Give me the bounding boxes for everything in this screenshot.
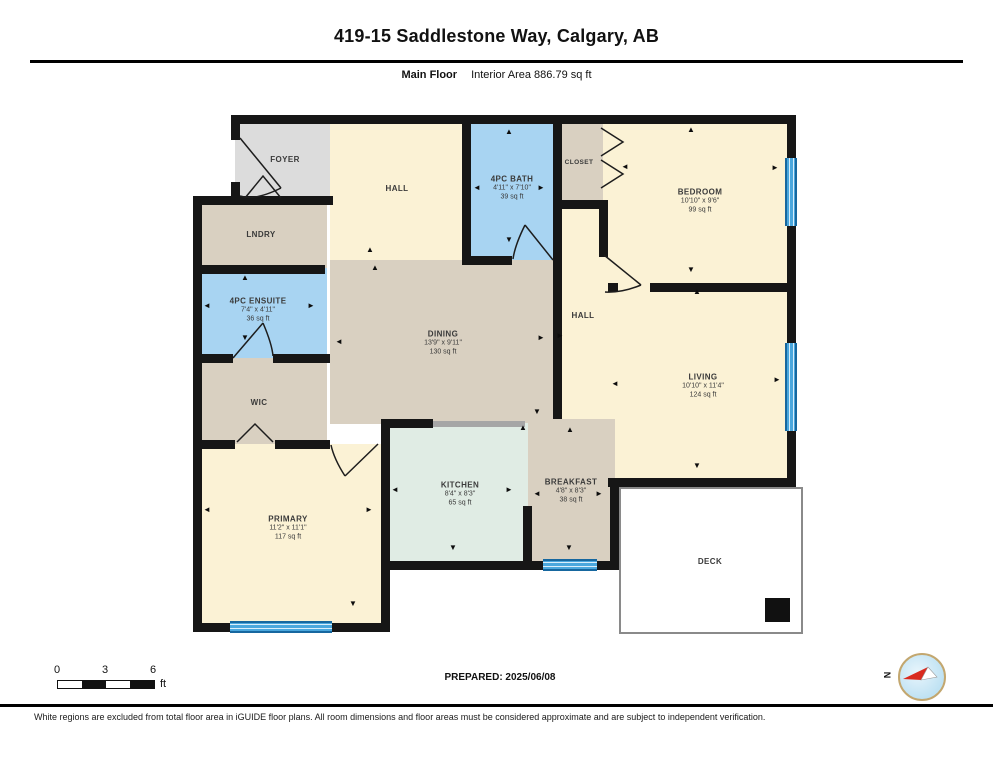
breakfast-window [543, 559, 597, 571]
wall [553, 209, 562, 419]
floor-subtitle: Main FloorInterior Area 886.79 sq ft [0, 69, 993, 81]
camera-arrow-icon [371, 264, 379, 272]
compass-north-label: N [882, 672, 892, 679]
scale-number-6: 6 [147, 664, 159, 676]
camera-arrow-icon [505, 236, 513, 244]
camera-arrow-icon [519, 424, 527, 432]
wall [608, 283, 618, 292]
wall [650, 283, 796, 292]
camera-arrow-icon [693, 288, 701, 296]
kitchen-counter [430, 421, 525, 427]
label-lndry: LNDRY [246, 230, 275, 240]
label-primary: PRIMARY 11'2" x 11'1" 117 sq ft [268, 514, 307, 542]
camera-arrow-icon [349, 600, 357, 608]
wall [231, 115, 240, 140]
prepared-date: PREPARED: 2025/06/08 [380, 672, 620, 683]
page-title: 419-15 Saddlestone Way, Calgary, AB [0, 26, 993, 47]
label-bath: 4PC BATH 4'11" x 7'10" 39 sq ft [491, 174, 534, 202]
camera-arrow-icon [537, 334, 545, 342]
camera-arrow-icon [693, 462, 701, 470]
camera-arrow-icon [773, 376, 781, 384]
wall [381, 419, 433, 428]
wall [275, 440, 330, 449]
camera-arrow-icon [335, 338, 343, 346]
bedroom-window [785, 158, 797, 226]
wall [193, 440, 235, 449]
camera-arrow-icon [473, 184, 481, 192]
label-hall-top: HALL [386, 184, 409, 194]
camera-arrow-icon [241, 274, 249, 282]
deck-post [765, 598, 790, 622]
compass: N [884, 652, 956, 702]
wall [553, 115, 562, 209]
camera-arrow-icon [449, 544, 457, 552]
camera-arrow-icon [771, 164, 779, 172]
camera-arrow-icon [366, 246, 374, 254]
wall [462, 256, 512, 265]
floor-label: Main Floor [401, 69, 457, 81]
camera-arrow-icon [687, 126, 695, 134]
floor-plan: FOYER HALL 4PC BATH 4'11" x 7'10" 39 sq … [185, 108, 807, 636]
wall [193, 265, 325, 274]
scale-unit: ft [160, 678, 166, 690]
living-window [785, 343, 797, 431]
camera-arrow-icon [203, 506, 211, 514]
camera-arrow-icon [533, 408, 541, 416]
camera-arrow-icon [505, 486, 513, 494]
camera-arrow-icon [537, 184, 545, 192]
wall [610, 487, 619, 570]
camera-arrow-icon [565, 544, 573, 552]
primary-window [230, 621, 332, 633]
camera-arrow-icon [621, 163, 629, 171]
label-hall-mid: HALL [572, 311, 595, 321]
wall [193, 196, 202, 632]
camera-arrow-icon [505, 128, 513, 136]
label-closet: CLOSET [565, 159, 594, 167]
compass-needle [900, 655, 944, 699]
disclaimer-text: White regions are excluded from total fl… [34, 712, 969, 722]
label-bedroom: BEDROOM 10'10" x 9'6" 99 sq ft [678, 187, 723, 215]
camera-arrow-icon [203, 302, 211, 310]
floor-plan-page: 419-15 Saddlestone Way, Calgary, AB Main… [0, 0, 993, 768]
scale-number-3: 3 [99, 664, 111, 676]
camera-arrow-icon [687, 266, 695, 274]
scale-bar [57, 680, 155, 689]
label-deck: DECK [698, 557, 722, 567]
camera-arrow-icon [241, 334, 249, 342]
camera-arrow-icon [611, 380, 619, 388]
label-foyer: FOYER [270, 155, 300, 165]
camera-arrow-icon [566, 426, 574, 434]
camera-arrow-icon [391, 486, 399, 494]
footer-divider [0, 704, 993, 707]
label-kitchen: KITCHEN 8'4" x 8'3" 65 sq ft [441, 480, 479, 508]
camera-arrow-icon [556, 332, 564, 340]
wall [608, 478, 796, 487]
wall [381, 428, 390, 632]
compass-icon [898, 653, 946, 701]
wall [231, 115, 796, 124]
wall [523, 506, 532, 570]
camera-arrow-icon [365, 506, 373, 514]
label-wic: WIC [251, 398, 268, 408]
camera-arrow-icon [307, 302, 315, 310]
wall [193, 354, 233, 363]
label-living: LIVING 10'10" x 11'4" 124 sq ft [682, 372, 724, 400]
title-divider [30, 60, 963, 63]
interior-area-label: Interior Area 886.79 sq ft [471, 69, 591, 81]
wall [381, 561, 533, 570]
label-ensuite: 4PC ENSUITE 7'4" x 4'11" 36 sq ft [230, 296, 287, 324]
scale-number-0: 0 [51, 664, 63, 676]
wall [462, 115, 471, 265]
camera-arrow-icon [533, 490, 541, 498]
label-dining: DINING 13'9" x 9'11" 130 sq ft [424, 329, 462, 357]
wall [193, 196, 333, 205]
wall [273, 354, 330, 363]
label-breakfast: BREAKFAST 4'8" x 8'3" 38 sq ft [545, 477, 598, 505]
